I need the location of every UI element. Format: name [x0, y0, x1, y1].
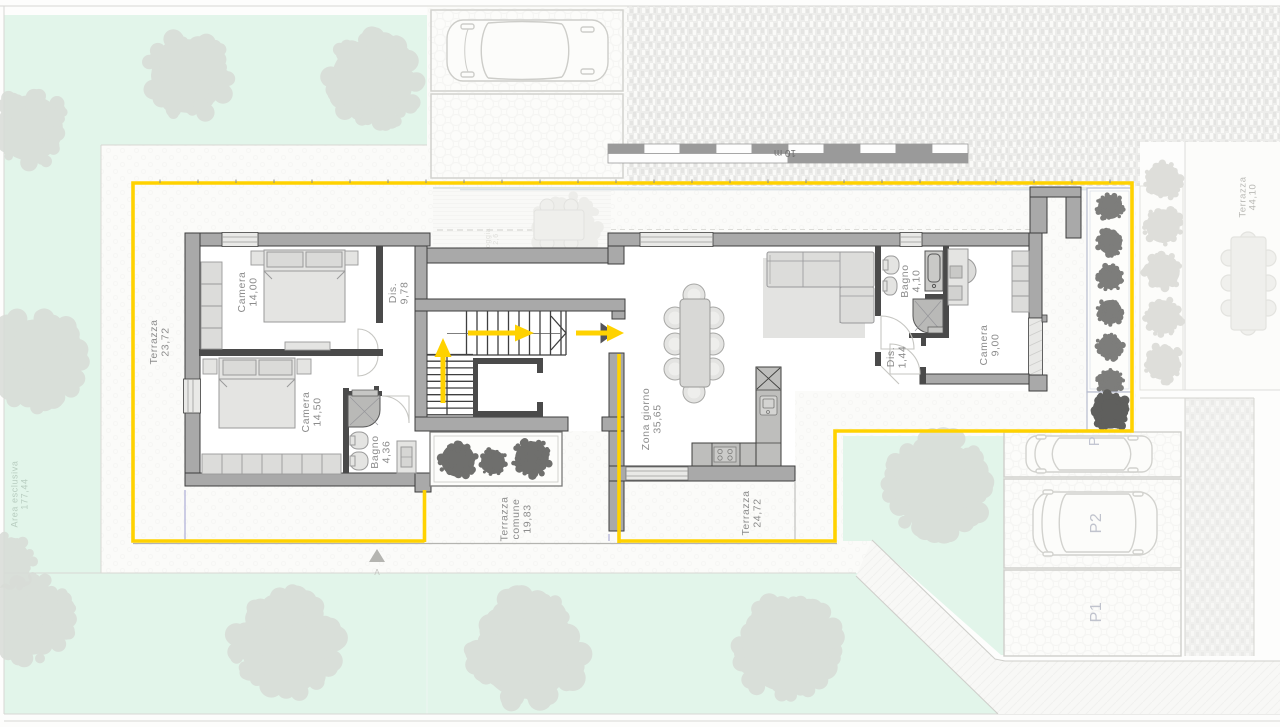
svg-text:Camera: Camera — [300, 392, 312, 433]
svg-text:Zona giorno: Zona giorno — [640, 388, 652, 451]
svg-text:Terrazza: Terrazza — [148, 319, 160, 364]
svg-text:19,83: 19,83 — [521, 504, 533, 533]
svg-text:1,44: 1,44 — [897, 346, 909, 369]
svg-text:4,10: 4,10 — [911, 270, 923, 293]
svg-text:comune: comune — [510, 499, 522, 540]
svg-text:14,00: 14,00 — [248, 277, 260, 306]
svg-text:4,36: 4,36 — [381, 441, 393, 464]
svg-text:177,44: 177,44 — [19, 478, 29, 509]
svg-text:P: P — [1086, 436, 1103, 447]
svg-text:9,00: 9,00 — [990, 334, 1002, 357]
svg-text:Terrazza: Terrazza — [498, 496, 510, 541]
svg-text:Terrazza: Terrazza — [740, 490, 752, 535]
svg-text:23,72: 23,72 — [160, 327, 172, 356]
svg-text:24,72: 24,72 — [752, 498, 764, 527]
svg-text:10 m: 10 m — [774, 147, 796, 158]
svg-text:Area esclusiva: Area esclusiva — [9, 461, 19, 528]
svg-text:Camera: Camera — [978, 325, 990, 366]
svg-text:Bagno: Bagno — [899, 264, 911, 297]
svg-text:A: A — [374, 568, 380, 577]
svg-text:P1: P1 — [1088, 602, 1105, 623]
svg-text:14,50: 14,50 — [312, 397, 324, 426]
svg-text:Dis.: Dis. — [387, 283, 399, 303]
svg-text:35,65: 35,65 — [652, 404, 664, 433]
svg-text:Bagno: Bagno — [369, 435, 381, 468]
svg-text:loggia: loggia — [485, 228, 492, 250]
svg-text:Terrazza: Terrazza — [1237, 176, 1248, 217]
svg-text:44,10: 44,10 — [1248, 184, 1259, 211]
svg-text:9,78: 9,78 — [399, 282, 411, 305]
svg-text:Dis.: Dis. — [885, 347, 897, 367]
svg-text:Camera: Camera — [236, 272, 248, 313]
svg-text:P2: P2 — [1088, 513, 1105, 534]
svg-text:2,6: 2,6 — [493, 233, 500, 245]
